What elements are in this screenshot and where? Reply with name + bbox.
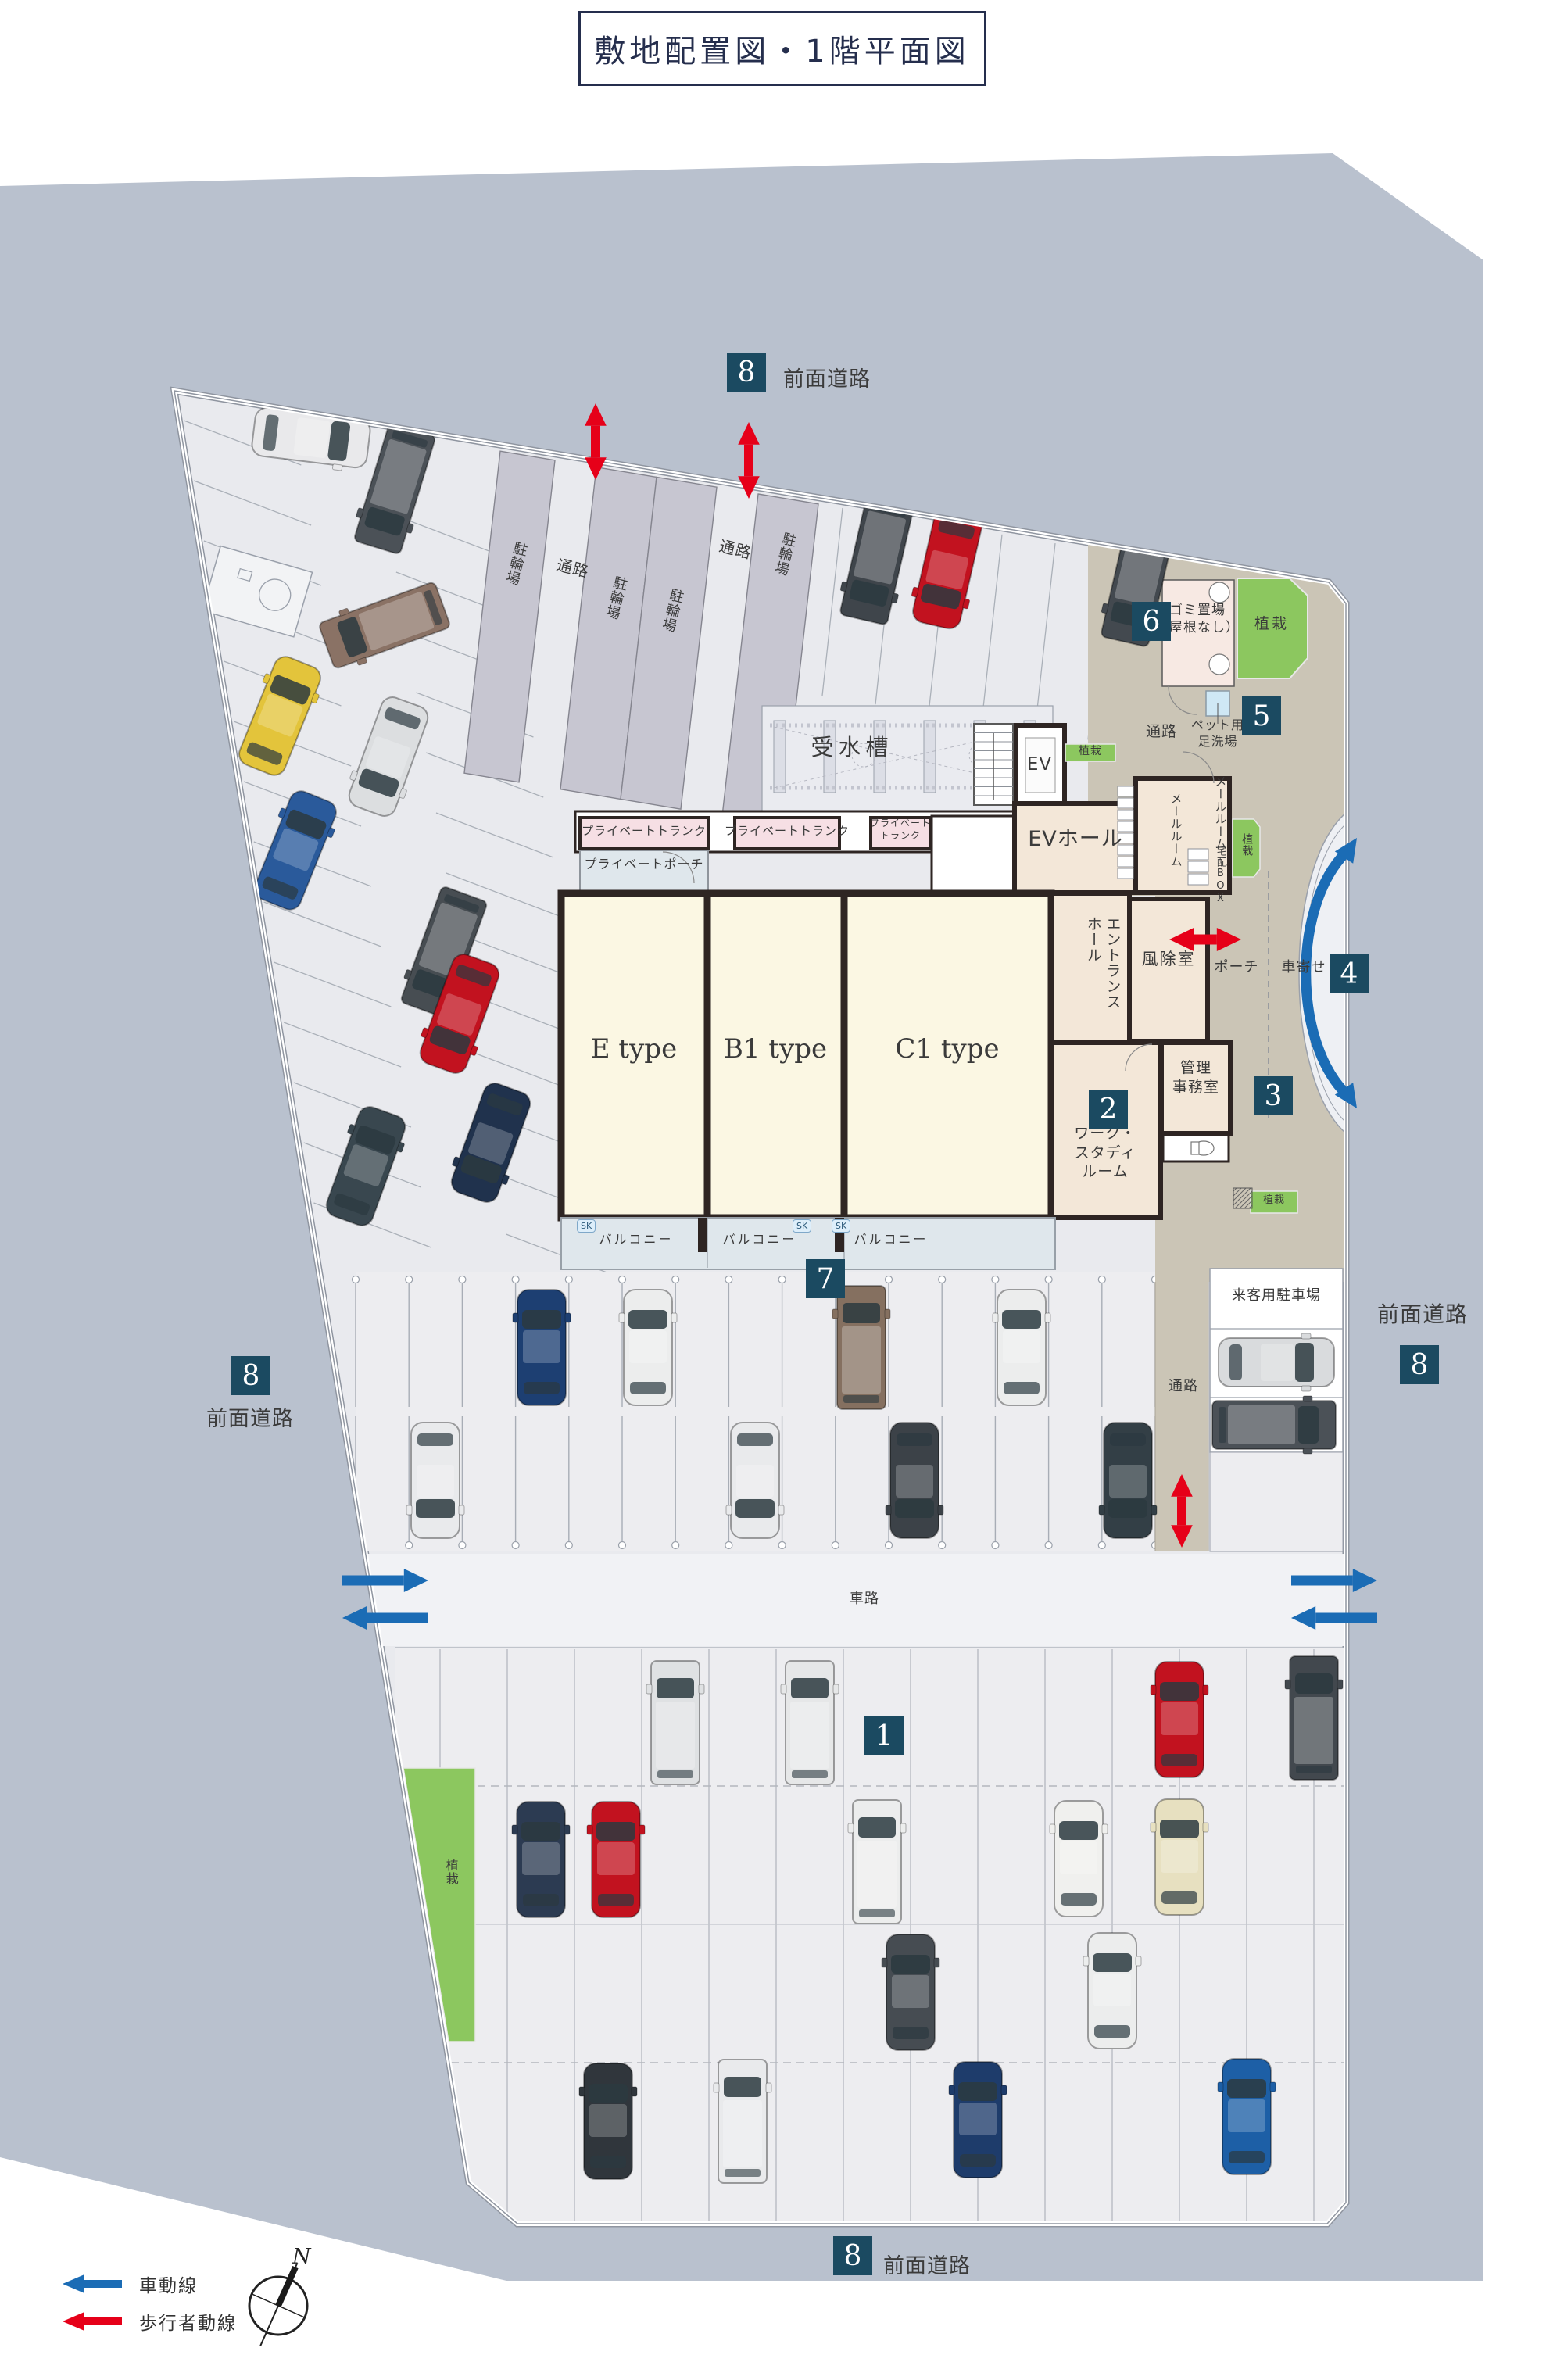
legend-row-car: 車動線 bbox=[61, 2265, 237, 2303]
legend-car-label: 車動線 bbox=[139, 2271, 198, 2297]
label-private-porch: プライベートポーチ bbox=[584, 857, 703, 873]
label-jusuiso: 受水槽 bbox=[811, 733, 893, 763]
label-pet-wash: ペット用 足洗場 bbox=[1191, 718, 1244, 750]
label-sk-2: SK bbox=[793, 1219, 811, 1233]
legend-pedestrian-label: 歩行者動線 bbox=[139, 2308, 237, 2335]
label-tsuro-right: 通路 bbox=[1146, 722, 1177, 742]
label-mail-room-1: メールルーム bbox=[1168, 793, 1183, 868]
car bbox=[513, 1290, 571, 1405]
car bbox=[1151, 1799, 1208, 1915]
car bbox=[406, 1423, 464, 1538]
label-plant-1: 植栽 bbox=[1079, 744, 1102, 758]
label-balcony-1: バルコニー bbox=[599, 1232, 674, 1248]
legend: 車動線 歩行者動線 bbox=[61, 2265, 237, 2340]
label-trunk-2: プライベートトランク bbox=[725, 824, 850, 839]
label-fujoshitsu: 風除室 bbox=[1142, 949, 1196, 970]
badge-6: 6 bbox=[1132, 602, 1171, 641]
car bbox=[993, 1290, 1050, 1405]
compass-icon: N bbox=[234, 2237, 328, 2346]
legend-row-pedestrian: 歩行者動線 bbox=[61, 2303, 237, 2340]
label-takuhai-box: 宅配BOX bbox=[1213, 846, 1226, 905]
road-label-left: 前面道路 bbox=[206, 1405, 294, 1433]
car bbox=[1219, 1333, 1334, 1391]
badge-8-top: 8 bbox=[727, 353, 766, 392]
car bbox=[726, 1423, 784, 1538]
label-unit-e: E type bbox=[591, 1032, 677, 1066]
label-trunk-1: プライベートトランク bbox=[582, 824, 707, 839]
site-plan-canvas bbox=[0, 0, 1564, 2380]
label-visitor-parking: 来客用駐車場 bbox=[1232, 1287, 1321, 1305]
badge-8-bottom: 8 bbox=[833, 2236, 872, 2275]
car bbox=[1050, 1801, 1108, 1917]
badge-5: 5 bbox=[1242, 696, 1281, 735]
car-flow-arrow-icon bbox=[61, 2274, 123, 2294]
car bbox=[619, 1290, 677, 1405]
label-kurumayose: 車寄せ bbox=[1282, 958, 1326, 976]
label-ev: EV bbox=[1027, 753, 1052, 777]
car bbox=[1099, 1423, 1157, 1538]
road-label-right: 前面道路 bbox=[1377, 1301, 1468, 1329]
car bbox=[579, 2063, 637, 2179]
car bbox=[587, 1802, 645, 1917]
label-unit-b1: B1 type bbox=[724, 1032, 827, 1066]
label-entrance-hall: エントランス ホール bbox=[1083, 916, 1122, 1010]
label-porch: ポーチ bbox=[1215, 958, 1259, 976]
car bbox=[832, 1286, 890, 1409]
label-kanri: 管理 事務室 bbox=[1172, 1058, 1219, 1097]
road-label-top: 前面道路 bbox=[783, 366, 871, 393]
car bbox=[949, 2062, 1007, 2178]
label-mail-room-2: メールルーム bbox=[1212, 775, 1228, 850]
label-sk-1: SK bbox=[577, 1219, 596, 1233]
label-sharo: 車路 bbox=[850, 1590, 879, 1608]
label-ev-hall: EVホール bbox=[1028, 825, 1123, 853]
label-plant-3: 植栽 bbox=[1240, 833, 1254, 857]
car bbox=[714, 2060, 771, 2183]
badge-2: 2 bbox=[1089, 1090, 1128, 1129]
badge-1: 1 bbox=[864, 1716, 904, 1755]
label-sk-3: SK bbox=[832, 1219, 850, 1233]
car bbox=[781, 1661, 839, 1784]
label-unit-c1: C1 type bbox=[895, 1032, 999, 1066]
car bbox=[882, 1934, 939, 2050]
car bbox=[1218, 2059, 1276, 2174]
badge-4: 4 bbox=[1330, 954, 1369, 993]
car bbox=[1212, 1396, 1336, 1454]
compass-north-label: N bbox=[292, 2245, 312, 2269]
label-tsuro-visitor: 通路 bbox=[1169, 1377, 1198, 1395]
badge-3: 3 bbox=[1254, 1076, 1293, 1115]
car bbox=[1083, 1933, 1141, 2049]
car bbox=[1285, 1656, 1343, 1780]
car bbox=[848, 1800, 906, 1924]
car bbox=[512, 1802, 570, 1917]
road-label-bottom: 前面道路 bbox=[883, 2253, 971, 2280]
page-title-box: 敷地配置図・1階平面図 bbox=[578, 11, 986, 86]
pedestrian-flow-arrow-icon bbox=[61, 2311, 123, 2332]
driveway bbox=[274, 1554, 1346, 1646]
label-plant-5: 植栽 bbox=[442, 1859, 459, 1885]
label-trunk-3: プライベート トランク bbox=[870, 818, 931, 842]
badge-7: 7 bbox=[806, 1259, 845, 1298]
badge-8-right: 8 bbox=[1400, 1345, 1439, 1384]
label-plant-4: 植栽 bbox=[1263, 1194, 1285, 1208]
label-work-study: ワーク・ スタディ ルーム bbox=[1074, 1124, 1136, 1182]
car bbox=[646, 1661, 704, 1784]
label-balcony-2: バルコニー bbox=[723, 1232, 797, 1248]
site-plan-page: 敷地配置図・1階平面図 前面道路前面道路前面道路前面道路受水槽EVEVホールメー… bbox=[0, 0, 1564, 2380]
label-balcony-3: バルコニー bbox=[854, 1232, 929, 1248]
car bbox=[886, 1423, 943, 1538]
car bbox=[1151, 1662, 1208, 1777]
badge-8-left: 8 bbox=[231, 1356, 270, 1395]
page-title: 敷地配置図・1階平面図 bbox=[594, 26, 969, 71]
label-plant-2: 植栽 bbox=[1254, 614, 1289, 634]
